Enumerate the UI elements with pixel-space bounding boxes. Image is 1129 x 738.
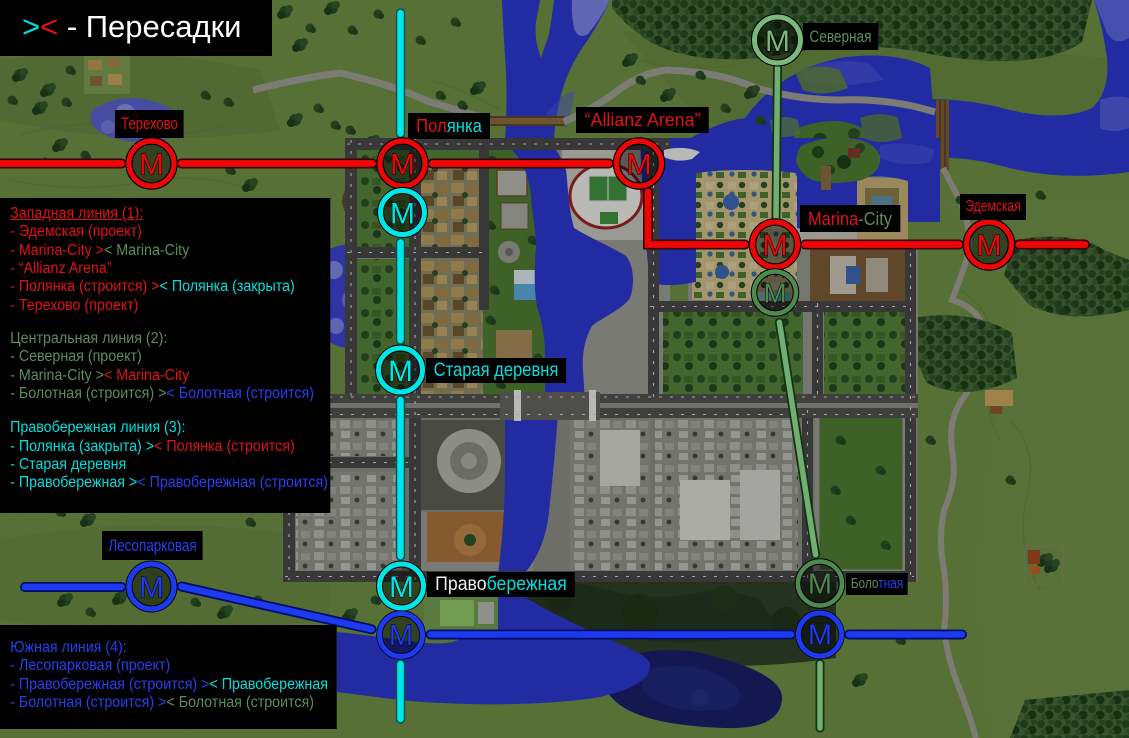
svg-text:М: М — [627, 149, 652, 182]
svg-text:М: М — [390, 198, 415, 231]
svg-text:М: М — [763, 278, 786, 309]
svg-text:М: М — [390, 149, 415, 182]
svg-text:М: М — [765, 25, 790, 58]
svg-text:М: М — [139, 572, 164, 605]
svg-text:М: М — [389, 571, 414, 604]
svg-text:М: М — [977, 230, 1002, 263]
svg-text:М: М — [389, 620, 413, 652]
svg-text:М: М — [388, 355, 413, 388]
svg-text:М: М — [808, 620, 832, 652]
svg-text:М: М — [139, 149, 164, 182]
svg-text:М: М — [763, 230, 788, 263]
svg-text:М: М — [808, 569, 832, 601]
